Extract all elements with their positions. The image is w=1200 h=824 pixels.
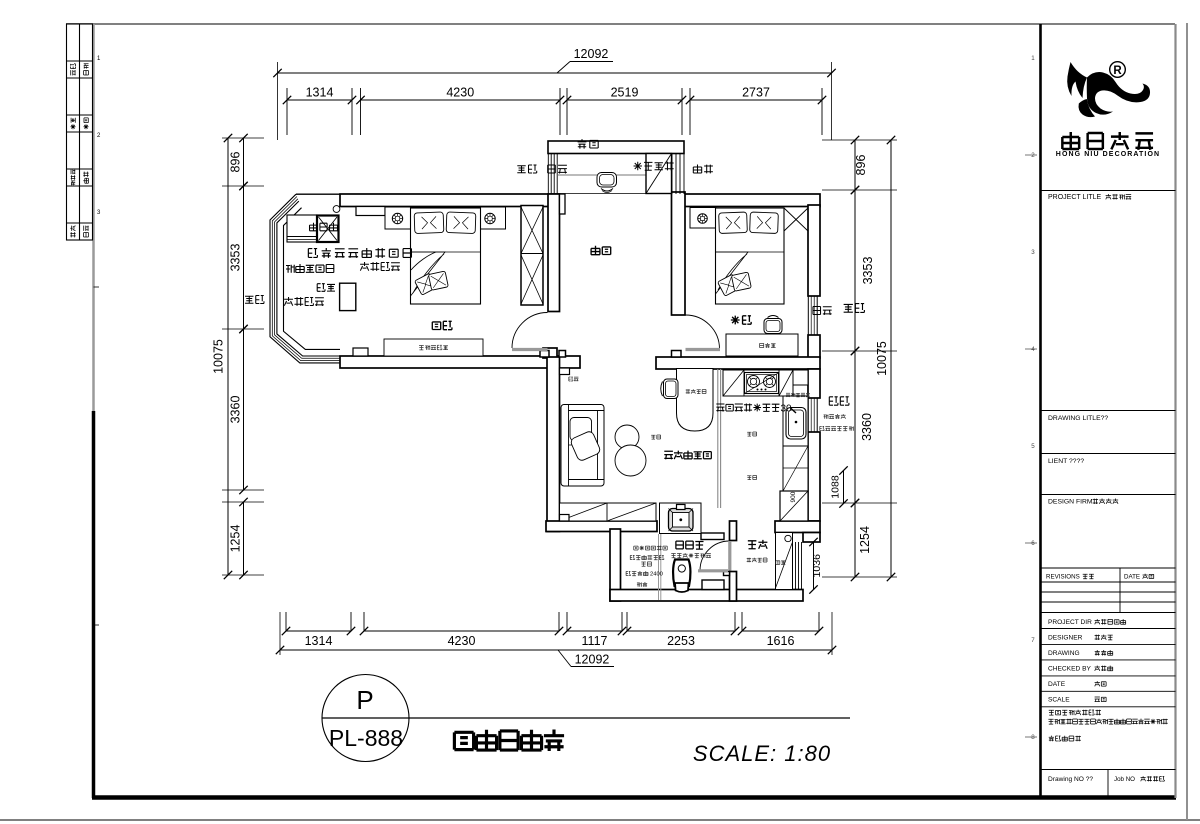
svg-text:1314: 1314 xyxy=(306,86,334,100)
svg-text:SCALE: SCALE xyxy=(1048,697,1070,704)
svg-text:PL-888: PL-888 xyxy=(329,725,403,751)
svg-text:2737: 2737 xyxy=(742,86,770,100)
svg-text:1117: 1117 xyxy=(582,634,608,648)
svg-text:LIENT ????: LIENT ???? xyxy=(1048,458,1084,465)
svg-text:DATE: DATE xyxy=(1048,681,1066,688)
svg-text:PROJECT DIR: PROJECT DIR xyxy=(1048,619,1092,626)
svg-text:1: 1 xyxy=(1031,55,1035,62)
svg-text:3353: 3353 xyxy=(229,244,243,272)
svg-text:DRAWING LITLE??: DRAWING LITLE?? xyxy=(1048,415,1108,422)
svg-text:4: 4 xyxy=(1031,346,1035,353)
svg-text:6: 6 xyxy=(1031,540,1035,547)
svg-text:4230: 4230 xyxy=(448,634,476,648)
svg-text:7: 7 xyxy=(1031,637,1035,644)
svg-text:1254: 1254 xyxy=(858,526,872,554)
svg-text:1088: 1088 xyxy=(830,475,842,499)
svg-text:12092: 12092 xyxy=(574,47,609,61)
svg-text:PROJECT LITLE: PROJECT LITLE xyxy=(1048,194,1101,201)
svg-text:4230: 4230 xyxy=(446,86,474,100)
svg-text:900: 900 xyxy=(790,491,797,502)
svg-text:3353: 3353 xyxy=(861,257,875,285)
svg-text:30: 30 xyxy=(781,404,793,415)
svg-text:3: 3 xyxy=(1031,249,1035,256)
svg-text:1314: 1314 xyxy=(305,634,333,648)
svg-text:REVISIONS: REVISIONS xyxy=(1046,574,1080,581)
svg-text:R: R xyxy=(1113,65,1122,77)
svg-text:DRAWING: DRAWING xyxy=(1048,650,1080,657)
svg-text:1616: 1616 xyxy=(767,634,795,648)
svg-text:5: 5 xyxy=(1031,443,1035,450)
svg-text:CHECKED BY: CHECKED BY xyxy=(1048,666,1091,673)
svg-text:DESIGNER: DESIGNER xyxy=(1048,635,1083,642)
svg-text:1036: 1036 xyxy=(811,554,823,578)
svg-text:10075: 10075 xyxy=(875,341,889,376)
svg-text:3360: 3360 xyxy=(229,396,243,424)
svg-text:2: 2 xyxy=(1031,152,1035,159)
svg-text:2519: 2519 xyxy=(611,86,639,100)
svg-text:2253: 2253 xyxy=(667,634,695,648)
svg-text:HONG NIU DECORATION: HONG NIU DECORATION xyxy=(1056,151,1160,158)
svg-text:DATE: DATE xyxy=(1124,574,1140,581)
svg-text:SCALE: 1:80: SCALE: 1:80 xyxy=(693,741,831,766)
svg-text:896: 896 xyxy=(854,155,868,176)
svg-text:8: 8 xyxy=(1031,734,1035,741)
svg-text:Job NO: Job NO xyxy=(1114,776,1135,783)
svg-text:P: P xyxy=(356,685,373,715)
svg-text:896: 896 xyxy=(229,152,243,173)
svg-text:12092: 12092 xyxy=(575,653,610,667)
svg-text:DESIGN FIRM: DESIGN FIRM xyxy=(1048,499,1093,506)
svg-text:Drawing NO ??: Drawing NO ?? xyxy=(1048,776,1093,783)
svg-text:1254: 1254 xyxy=(229,525,243,553)
svg-text:10075: 10075 xyxy=(212,339,226,374)
svg-text:2400: 2400 xyxy=(650,572,663,578)
svg-text:3360: 3360 xyxy=(860,413,874,441)
